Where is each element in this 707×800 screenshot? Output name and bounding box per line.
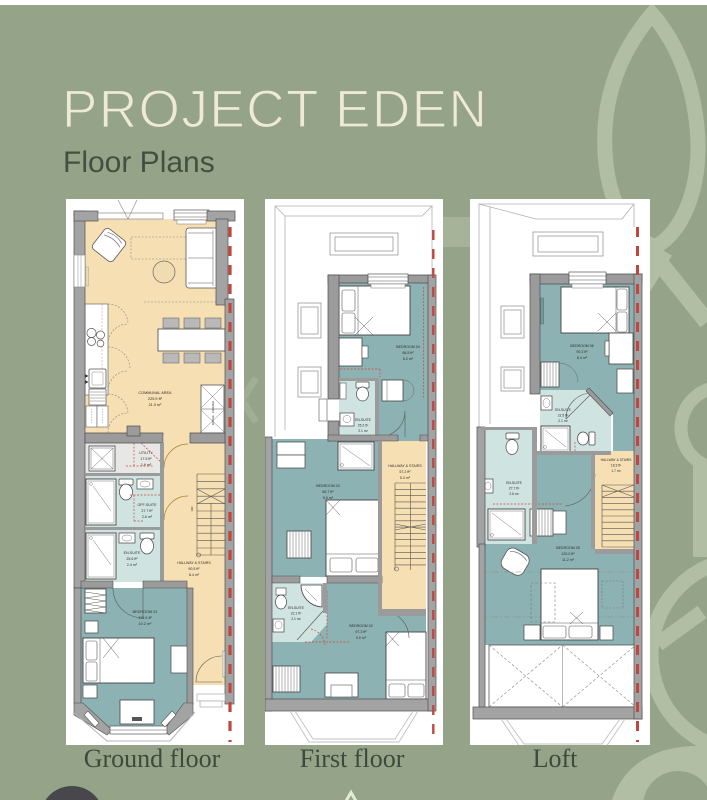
svg-text:BEDROOM 03: BEDROOM 03 [316,484,340,488]
svg-text:18.3 ft²: 18.3 ft² [611,464,622,468]
svg-text:27.7 ft²: 27.7 ft² [141,509,153,513]
svg-text:COMMUNAL AREA: COMMUNAL AREA [138,391,172,395]
svg-text:EN-SUITE: EN-SUITE [555,408,572,412]
svg-text:BEDROOM 02: BEDROOM 02 [349,624,373,628]
svg-text:25.2 ft²: 25.2 ft² [358,424,369,428]
svg-text:88.5 ft²: 88.5 ft² [402,351,414,355]
svg-text:2.4 m²: 2.4 m² [127,563,138,567]
svg-text:10.2 m²: 10.2 m² [139,622,153,626]
svg-text:85.7 ft²: 85.7 ft² [322,490,334,494]
svg-text:90.5 ft²: 90.5 ft² [188,567,200,571]
svg-text:5.3 m²: 5.3 m² [400,476,411,480]
svg-text:27.7 ft²: 27.7 ft² [509,487,520,491]
svg-text:8.0 m²: 8.0 m² [323,496,334,500]
svg-text:EN-SUITE: EN-SUITE [355,418,372,422]
svg-text:2.1 m²: 2.1 m² [291,617,301,621]
svg-text:21.0 m²: 21.0 m² [149,403,163,407]
svg-text:25.6 ft²: 25.6 ft² [126,557,138,561]
svg-text:1.7 m²: 1.7 m² [611,469,621,473]
svg-text:120.0 ft²: 120.0 ft² [561,552,575,556]
svg-text:HALLWAY & STAIRS: HALLWAY & STAIRS [388,464,422,468]
svg-text:FRIDGE · FREEZER: FRIDGE · FREEZER [211,401,215,425]
svg-text:2.6 m²: 2.6 m² [509,492,519,496]
svg-text:22.1 ft²: 22.1 ft² [291,612,302,616]
svg-text:1.6 m²: 1.6 m² [141,463,152,467]
svg-text:11.2 m²: 11.2 m² [562,558,575,562]
svg-text:BEDROOM 01: BEDROOM 01 [133,610,158,614]
svg-text:16R: 16R [190,506,194,511]
svg-text:HALLWAY & STAIRS: HALLWAY & STAIRS [177,561,211,565]
svg-text:2.1 m²: 2.1 m² [558,419,568,423]
svg-text:8.4 m²: 8.4 m² [189,573,200,577]
svg-text:OFF-SUITE: OFF-SUITE [138,503,158,507]
svg-text:2.6 m²: 2.6 m² [142,515,153,519]
svg-text:90.3 ft²: 90.3 ft² [576,350,588,354]
svg-text:97.3 ft²: 97.3 ft² [355,630,367,634]
svg-text:225.9 ft²: 225.9 ft² [148,397,163,401]
svg-text:8.2 m²: 8.2 m² [403,357,414,361]
svg-text:17.5 ft²: 17.5 ft² [140,457,152,461]
svg-text:8.4 m²: 8.4 m² [577,356,588,360]
svg-text:BEDROOM 05: BEDROOM 05 [556,546,580,550]
svg-text:57.2 ft²: 57.2 ft² [399,470,411,474]
svg-text:2.1 m²: 2.1 m² [358,429,368,433]
svg-text:EN-SUITE: EN-SUITE [506,481,523,485]
svg-text:HALLWAY & STAIRS: HALLWAY & STAIRS [601,458,633,462]
svg-text:BEDROOM 06: BEDROOM 06 [570,344,594,348]
svg-text:EN-SUITE: EN-SUITE [124,551,141,555]
svg-text:9.0 m²: 9.0 m² [356,636,367,640]
svg-text:BEDROOM 04: BEDROOM 04 [396,345,420,349]
svg-text:22.5 ft²: 22.5 ft² [558,414,569,418]
svg-text:EN-SUITE: EN-SUITE [288,606,305,610]
